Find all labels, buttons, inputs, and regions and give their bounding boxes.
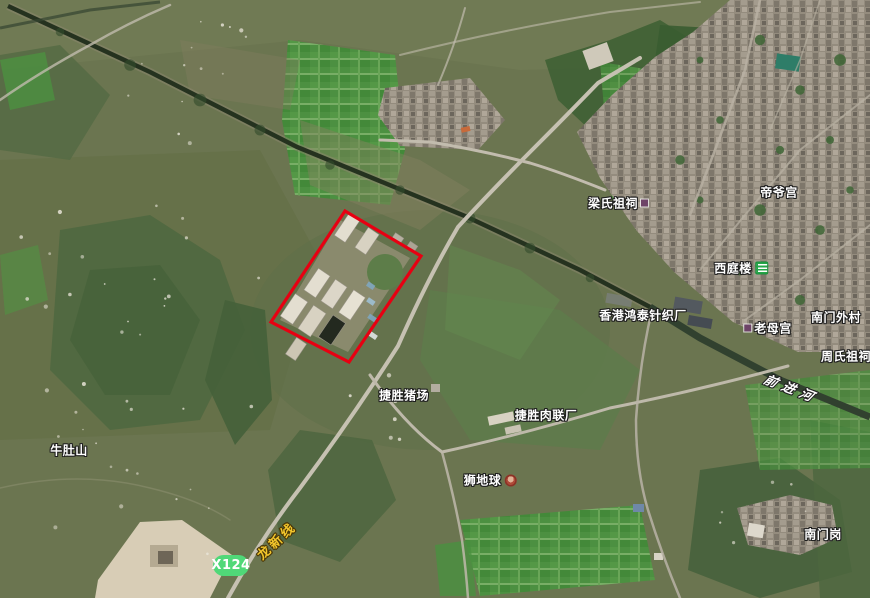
poi-label-zhou-shi-ancestral-hall[interactable]: 周氏祖祠 <box>821 348 870 365</box>
satellite-map[interactable]: 梁氏祖祠帝爷宫西庭楼香港鸿泰针织厂南门外村老母宫周氏祖祠捷胜猪场捷胜肉联厂狮地球… <box>0 0 870 598</box>
poi-label-text: 南门岗 <box>804 526 842 543</box>
temple-icon-red <box>504 474 516 486</box>
poi-label-text: 南门外村 <box>811 309 861 326</box>
satellite-imagery <box>0 0 870 598</box>
poi-label-text: 帝爷宫 <box>760 184 798 201</box>
poi-label-hongkong-hongtai-knitting-factory[interactable]: 香港鸿泰针织厂 <box>599 307 687 324</box>
poi-label-text: 捷胜肉联厂 <box>515 407 578 424</box>
shrine-icon-purple <box>744 325 751 332</box>
poi-label-jiesheng-pig-farm[interactable]: 捷胜猪场 <box>379 387 429 404</box>
poi-label-text: 香港鸿泰针织厂 <box>599 307 687 324</box>
poi-label-text: 梁氏祖祠 <box>588 195 638 212</box>
poi-label-text: 周氏祖祠 <box>821 348 870 365</box>
poi-label-jiesheng-meat-plant[interactable]: 捷胜肉联厂 <box>515 407 578 424</box>
poi-label-text: 西庭楼 <box>714 260 752 277</box>
poi-label-laomu-temple[interactable]: 老母宫 <box>744 320 792 337</box>
poi-label-di-ye-temple[interactable]: 帝爷宫 <box>760 184 798 201</box>
poi-label-text: 捷胜猪场 <box>379 387 429 404</box>
poi-label-niudu-mountain[interactable]: 牛肚山 <box>50 442 88 459</box>
poi-label-xi-ting-building[interactable]: 西庭楼 <box>714 260 768 277</box>
poi-label-text: 狮地球 <box>464 472 502 489</box>
poi-label-liang-shi-ancestral-hall[interactable]: 梁氏祖祠 <box>588 195 648 212</box>
poi-label-nanmen-outer-village[interactable]: 南门外村 <box>811 309 861 326</box>
road-badge-x124[interactable]: X124 <box>213 555 249 576</box>
poi-label-text: 老母宫 <box>754 320 792 337</box>
shrine-icon-purple <box>641 200 648 207</box>
poi-label-shi-di-qiu[interactable]: 狮地球 <box>464 472 517 489</box>
building-icon-green <box>755 262 768 275</box>
poi-label-nanmen-hill[interactable]: 南门岗 <box>804 526 842 543</box>
poi-label-text: 牛肚山 <box>50 442 88 459</box>
